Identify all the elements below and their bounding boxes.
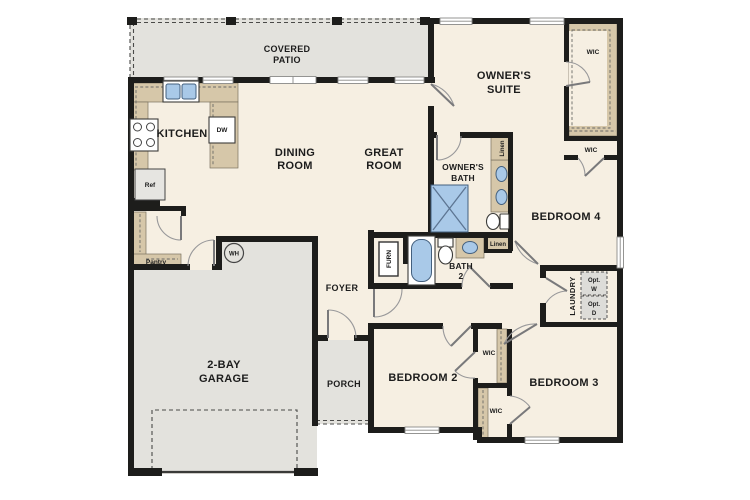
svg-text:W: W xyxy=(591,287,597,293)
patio-post xyxy=(127,17,137,25)
patio-post xyxy=(420,17,430,25)
label-bedroom3: BEDROOM 3 xyxy=(529,377,598,389)
label-dining-room: DINING xyxy=(275,147,315,159)
label-linen: Linen xyxy=(500,140,506,156)
patio-post xyxy=(332,17,342,25)
label-bedroom4: BEDROOM 4 xyxy=(531,211,601,223)
label-great-room: GREAT xyxy=(364,147,403,159)
label-furn: FURN xyxy=(386,250,393,268)
label-opt-dryer: Opt. xyxy=(588,302,600,308)
label-linen: Linen xyxy=(490,242,506,248)
svg-text:GARAGE: GARAGE xyxy=(199,373,249,385)
floor-plan-drawing: COVERED PATIO KITCHEN DINING ROOM GREAT … xyxy=(0,0,750,500)
garage-area xyxy=(130,238,317,474)
label-owners-suite: OWNER'S xyxy=(477,70,531,82)
label-laundry: LAUNDRY xyxy=(568,276,577,315)
wic-bedroom2-shelf xyxy=(497,329,507,383)
label-pantry: Pantry xyxy=(146,259,167,266)
label-bedroom2: BEDROOM 2 xyxy=(388,372,457,384)
label-wic: WIC xyxy=(483,350,496,357)
vanity-sink-icon xyxy=(496,190,507,205)
label-wic: WIC xyxy=(587,49,600,56)
label-foyer: FOYER xyxy=(326,283,359,293)
label-opt-washer: Opt. xyxy=(588,278,600,284)
svg-text:ROOM: ROOM xyxy=(366,160,401,172)
svg-text:ROOM: ROOM xyxy=(277,160,312,172)
toilet-icon xyxy=(500,214,509,229)
label-porch: PORCH xyxy=(327,379,361,389)
label-kitchen: KITCHEN xyxy=(157,128,208,140)
label-owners-bath: OWNER'S xyxy=(442,162,484,172)
svg-text:PATIO: PATIO xyxy=(273,55,301,65)
label-wic: WIC xyxy=(585,147,598,154)
vanity-sink-icon xyxy=(463,242,478,254)
vanity-sink-icon xyxy=(496,167,507,182)
svg-text:BATH: BATH xyxy=(451,173,475,183)
svg-text:2: 2 xyxy=(459,271,464,281)
label-garage: 2-BAY xyxy=(207,359,241,371)
svg-text:SUITE: SUITE xyxy=(487,84,521,96)
label-wic: WIC xyxy=(490,408,503,415)
label-wh: WH xyxy=(229,252,239,258)
svg-text:D: D xyxy=(592,311,597,317)
patio-post xyxy=(226,17,236,25)
label-bath2: BATH xyxy=(449,261,473,271)
stove-icon xyxy=(130,119,158,151)
label-ref: Ref xyxy=(145,182,156,189)
label-covered-patio: COVERED xyxy=(264,44,311,54)
floor-plan: COVERED PATIO KITCHEN DINING ROOM GREAT … xyxy=(0,0,750,500)
label-dw: DW xyxy=(217,127,229,134)
